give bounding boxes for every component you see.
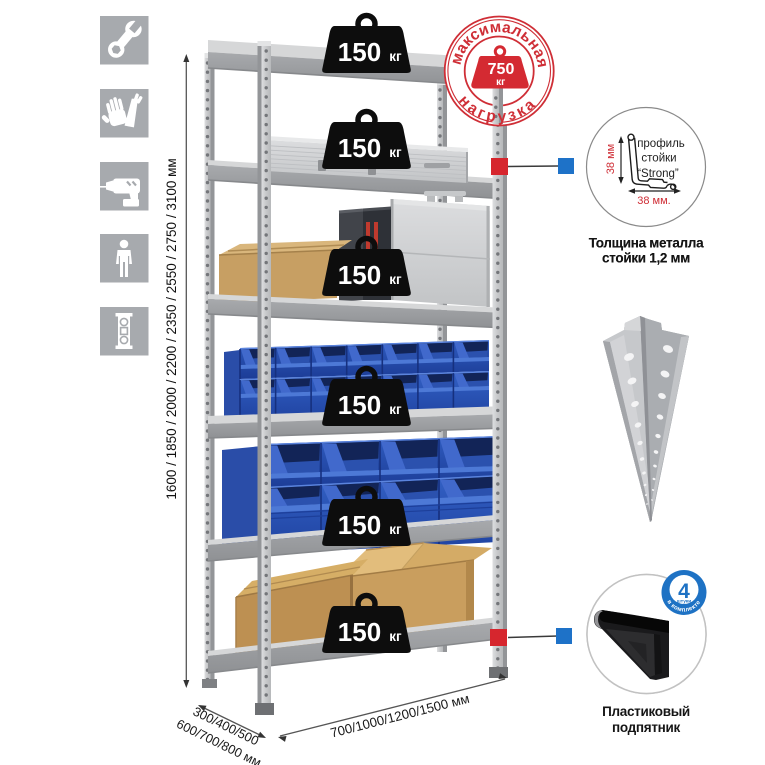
- svg-text:150: 150: [338, 617, 381, 647]
- svg-text:кг: кг: [496, 77, 505, 88]
- svg-text:кг: кг: [389, 272, 402, 287]
- svg-text:750: 750: [488, 61, 515, 78]
- svg-text:38 мм: 38 мм: [605, 144, 617, 174]
- svg-text:профиль: профиль: [637, 138, 685, 150]
- svg-text:штуки: штуки: [677, 600, 692, 605]
- svg-text:150: 150: [338, 260, 381, 290]
- svg-text:150: 150: [338, 510, 381, 540]
- svg-text:150: 150: [338, 133, 381, 163]
- svg-text:кг: кг: [389, 145, 402, 160]
- svg-text:150: 150: [338, 37, 381, 67]
- svg-text:“Strong”: “Strong”: [637, 168, 679, 180]
- svg-text:150: 150: [338, 390, 381, 420]
- svg-text:1600 / 1850 / 2000 / 2200 / 23: 1600 / 1850 / 2000 / 2200 / 2350 / 2550 …: [164, 158, 179, 499]
- svg-text:кг: кг: [389, 629, 402, 644]
- svg-text:подпятник: подпятник: [612, 720, 680, 735]
- svg-text:38 мм.: 38 мм.: [637, 195, 670, 207]
- svg-text:кг: кг: [389, 402, 402, 417]
- svg-text:стойки: стойки: [641, 153, 676, 165]
- svg-text:кг: кг: [389, 522, 402, 537]
- svg-text:Толщина металла: Толщина металла: [589, 236, 704, 251]
- svg-text:стойки 1,2 мм: стойки 1,2 мм: [602, 251, 690, 266]
- svg-text:кг: кг: [389, 49, 402, 64]
- svg-text:Пластиковый: Пластиковый: [602, 704, 690, 719]
